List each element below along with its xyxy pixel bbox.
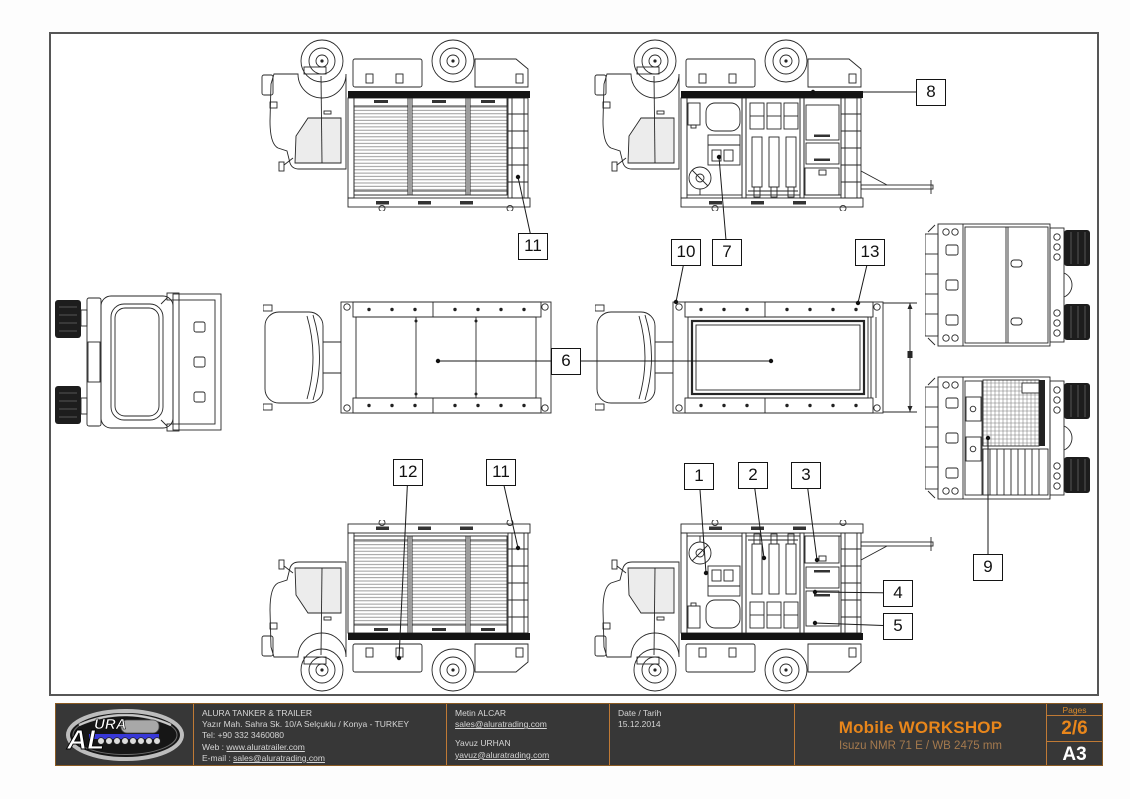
contact-1-name: Metin ALCAR bbox=[455, 708, 601, 719]
date-value: 15.12.2014 bbox=[618, 719, 786, 730]
view-side-compartments-open-inverted bbox=[593, 36, 943, 211]
contact-2-email: yavuz@aluratrading.com bbox=[455, 750, 601, 761]
callout-1: 1 bbox=[684, 463, 714, 490]
title-block: AL URA ALURA TANKER & TRAILER Yazır Mah.… bbox=[55, 703, 1103, 766]
date-label: Date / Tarih bbox=[618, 708, 786, 719]
view-front-rotated bbox=[55, 292, 225, 432]
view-rear-doors-open-rotated bbox=[925, 373, 1093, 505]
view-top-plan-roof-open bbox=[595, 300, 925, 415]
web-label: Web : bbox=[202, 742, 226, 752]
company-name: ALURA TANKER & TRAILER bbox=[202, 708, 438, 719]
engineering-drawing-sheet: { "logo": { "al": "AL", "ura": "URA" }, … bbox=[0, 0, 1130, 799]
company-address: Yazır Mah. Sahra Sk. 10/A Selçuklu / Kon… bbox=[202, 719, 438, 730]
callout-8: 8 bbox=[916, 79, 946, 106]
pages-cell: Pages 2/6 A3 bbox=[1046, 704, 1102, 765]
company-email-link[interactable]: sales@aluratrading.com bbox=[233, 753, 325, 763]
callout-13: 13 bbox=[855, 239, 885, 266]
company-web-row: Web : www.aluratrailer.com bbox=[202, 742, 438, 753]
drawing-title-cell: Mobile WORKSHOP Isuzu NMR 71 E / WB 2475… bbox=[794, 704, 1046, 765]
callout-3: 3 bbox=[791, 462, 821, 489]
page-number: 2/6 bbox=[1047, 716, 1102, 742]
callout-10: 10 bbox=[671, 239, 701, 266]
callout-11-top: 11 bbox=[518, 233, 548, 260]
drawing-subtitle: Isuzu NMR 71 E / WB 2475 mm bbox=[839, 740, 1002, 752]
paper-size: A3 bbox=[1047, 742, 1102, 767]
callout-4: 4 bbox=[883, 580, 913, 607]
company-web-link[interactable]: www.aluratrailer.com bbox=[226, 742, 304, 752]
contact-1-email: sales@aluratrading.com bbox=[455, 719, 601, 730]
view-rear-doors-closed-rotated bbox=[925, 220, 1093, 352]
logo-text-ura: URA bbox=[94, 716, 127, 733]
callout-5: 5 bbox=[883, 613, 913, 640]
view-side-compartments-open bbox=[593, 520, 943, 695]
company-tel: Tel: +90 332 3460080 bbox=[202, 730, 438, 741]
callout-2: 2 bbox=[738, 462, 768, 489]
callout-9: 9 bbox=[973, 554, 1003, 581]
view-side-shutters-closed-inverted bbox=[260, 36, 610, 211]
company-info-cell: ALURA TANKER & TRAILER Yazır Mah. Sahra … bbox=[193, 704, 446, 765]
drawing-title: Mobile WORKSHOP bbox=[839, 718, 1003, 738]
contacts-cell: Metin ALCAR sales@aluratrading.com Yavuz… bbox=[446, 704, 609, 765]
pages-label: Pages bbox=[1047, 704, 1102, 716]
view-side-shutters-closed bbox=[260, 520, 610, 695]
callout-11-bottom: 11 bbox=[486, 459, 516, 486]
company-logo: AL URA bbox=[56, 704, 193, 765]
contact-2-name: Yavuz URHAN bbox=[455, 738, 601, 749]
callout-7: 7 bbox=[712, 239, 742, 266]
view-top-plan-roof-closed bbox=[263, 300, 558, 415]
contact-1-email-link[interactable]: sales@aluratrading.com bbox=[455, 719, 547, 729]
date-cell: Date / Tarih 15.12.2014 bbox=[609, 704, 794, 765]
alura-logo-graphic: AL URA bbox=[61, 707, 189, 763]
contact-2-email-link[interactable]: yavuz@aluratrading.com bbox=[455, 750, 549, 760]
callout-12: 12 bbox=[393, 459, 423, 486]
email-label: E-mail : bbox=[202, 753, 233, 763]
callout-6: 6 bbox=[551, 348, 581, 375]
company-email-row: E-mail : sales@aluratrading.com bbox=[202, 753, 438, 764]
